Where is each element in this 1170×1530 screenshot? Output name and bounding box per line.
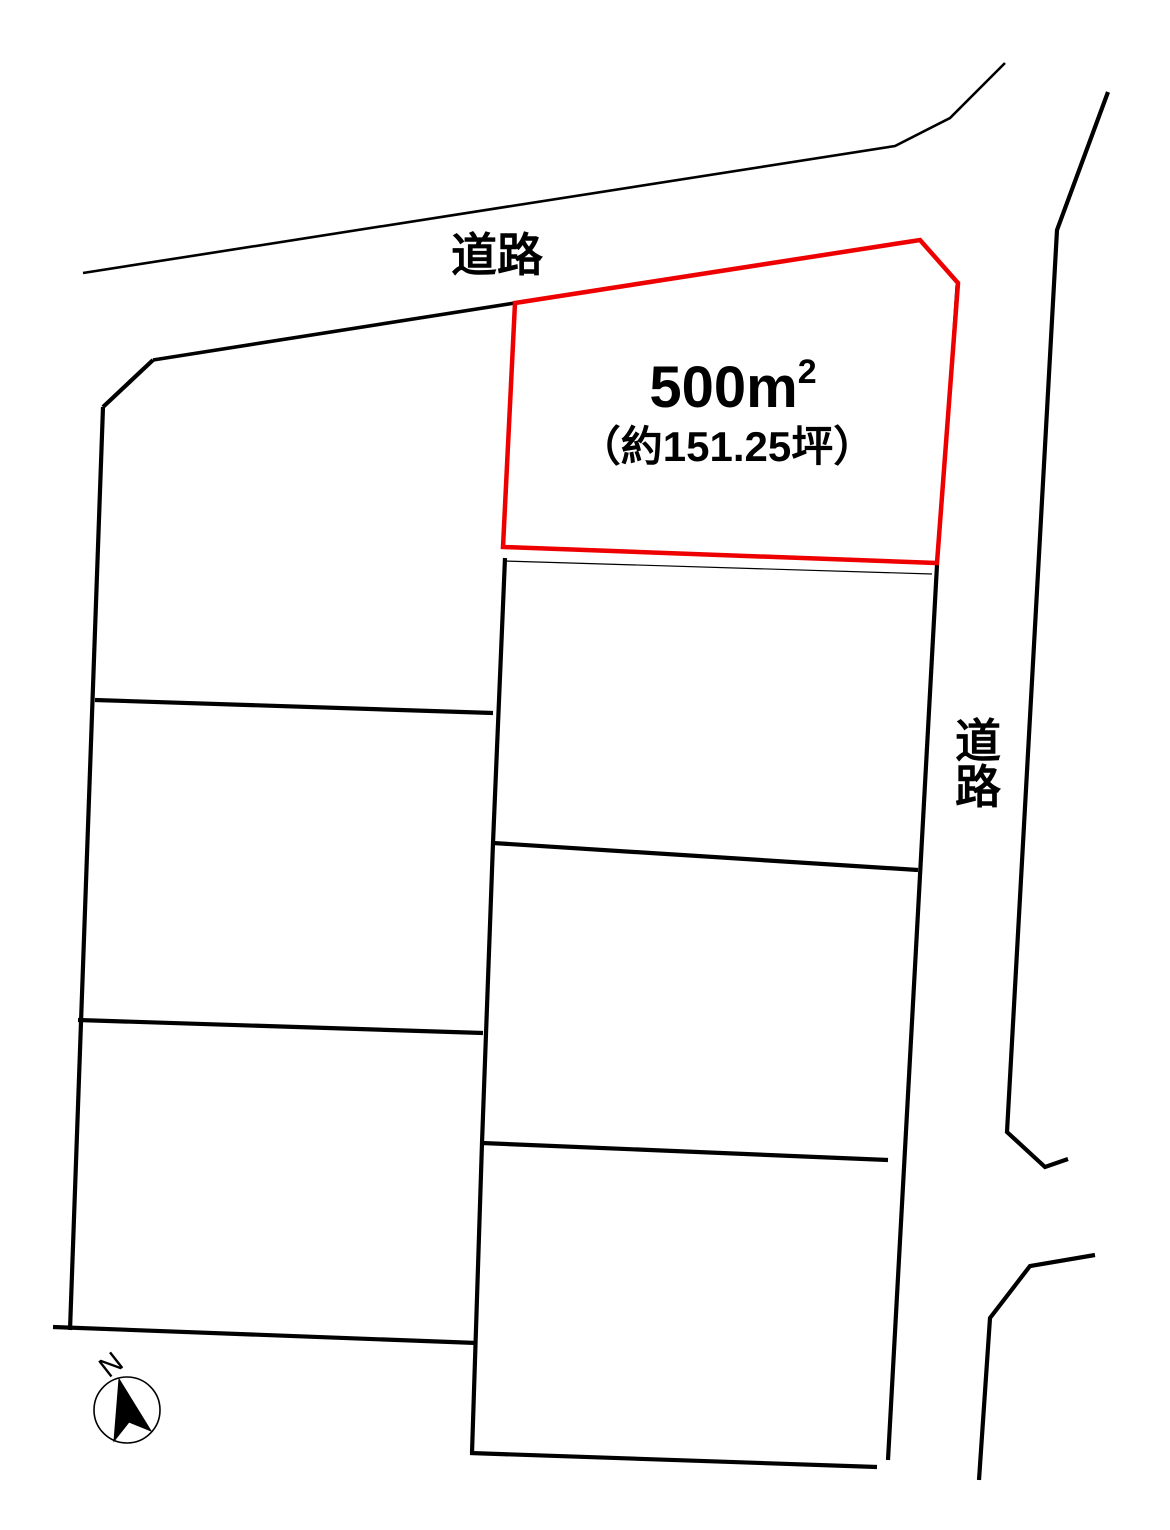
- plot-area-value: 500: [649, 355, 746, 420]
- road-label-right-char-1: 道: [955, 715, 1001, 767]
- road-label-top: 道路: [451, 229, 544, 281]
- plot-area-exponent: 2: [798, 353, 817, 391]
- plot-area-label: 500m2: [649, 353, 816, 420]
- road-label-right-char-2: 路: [955, 761, 1002, 813]
- plot-tsubo-label: （約151.25坪）: [579, 423, 875, 470]
- plot-map-canvas: 道路 道 路 500m2 （約151.25坪） N: [0, 0, 1170, 1530]
- plot-area-unit: m: [746, 355, 798, 420]
- land-plot-diagram: 道路 道 路 500m2 （約151.25坪） N: [0, 0, 1170, 1530]
